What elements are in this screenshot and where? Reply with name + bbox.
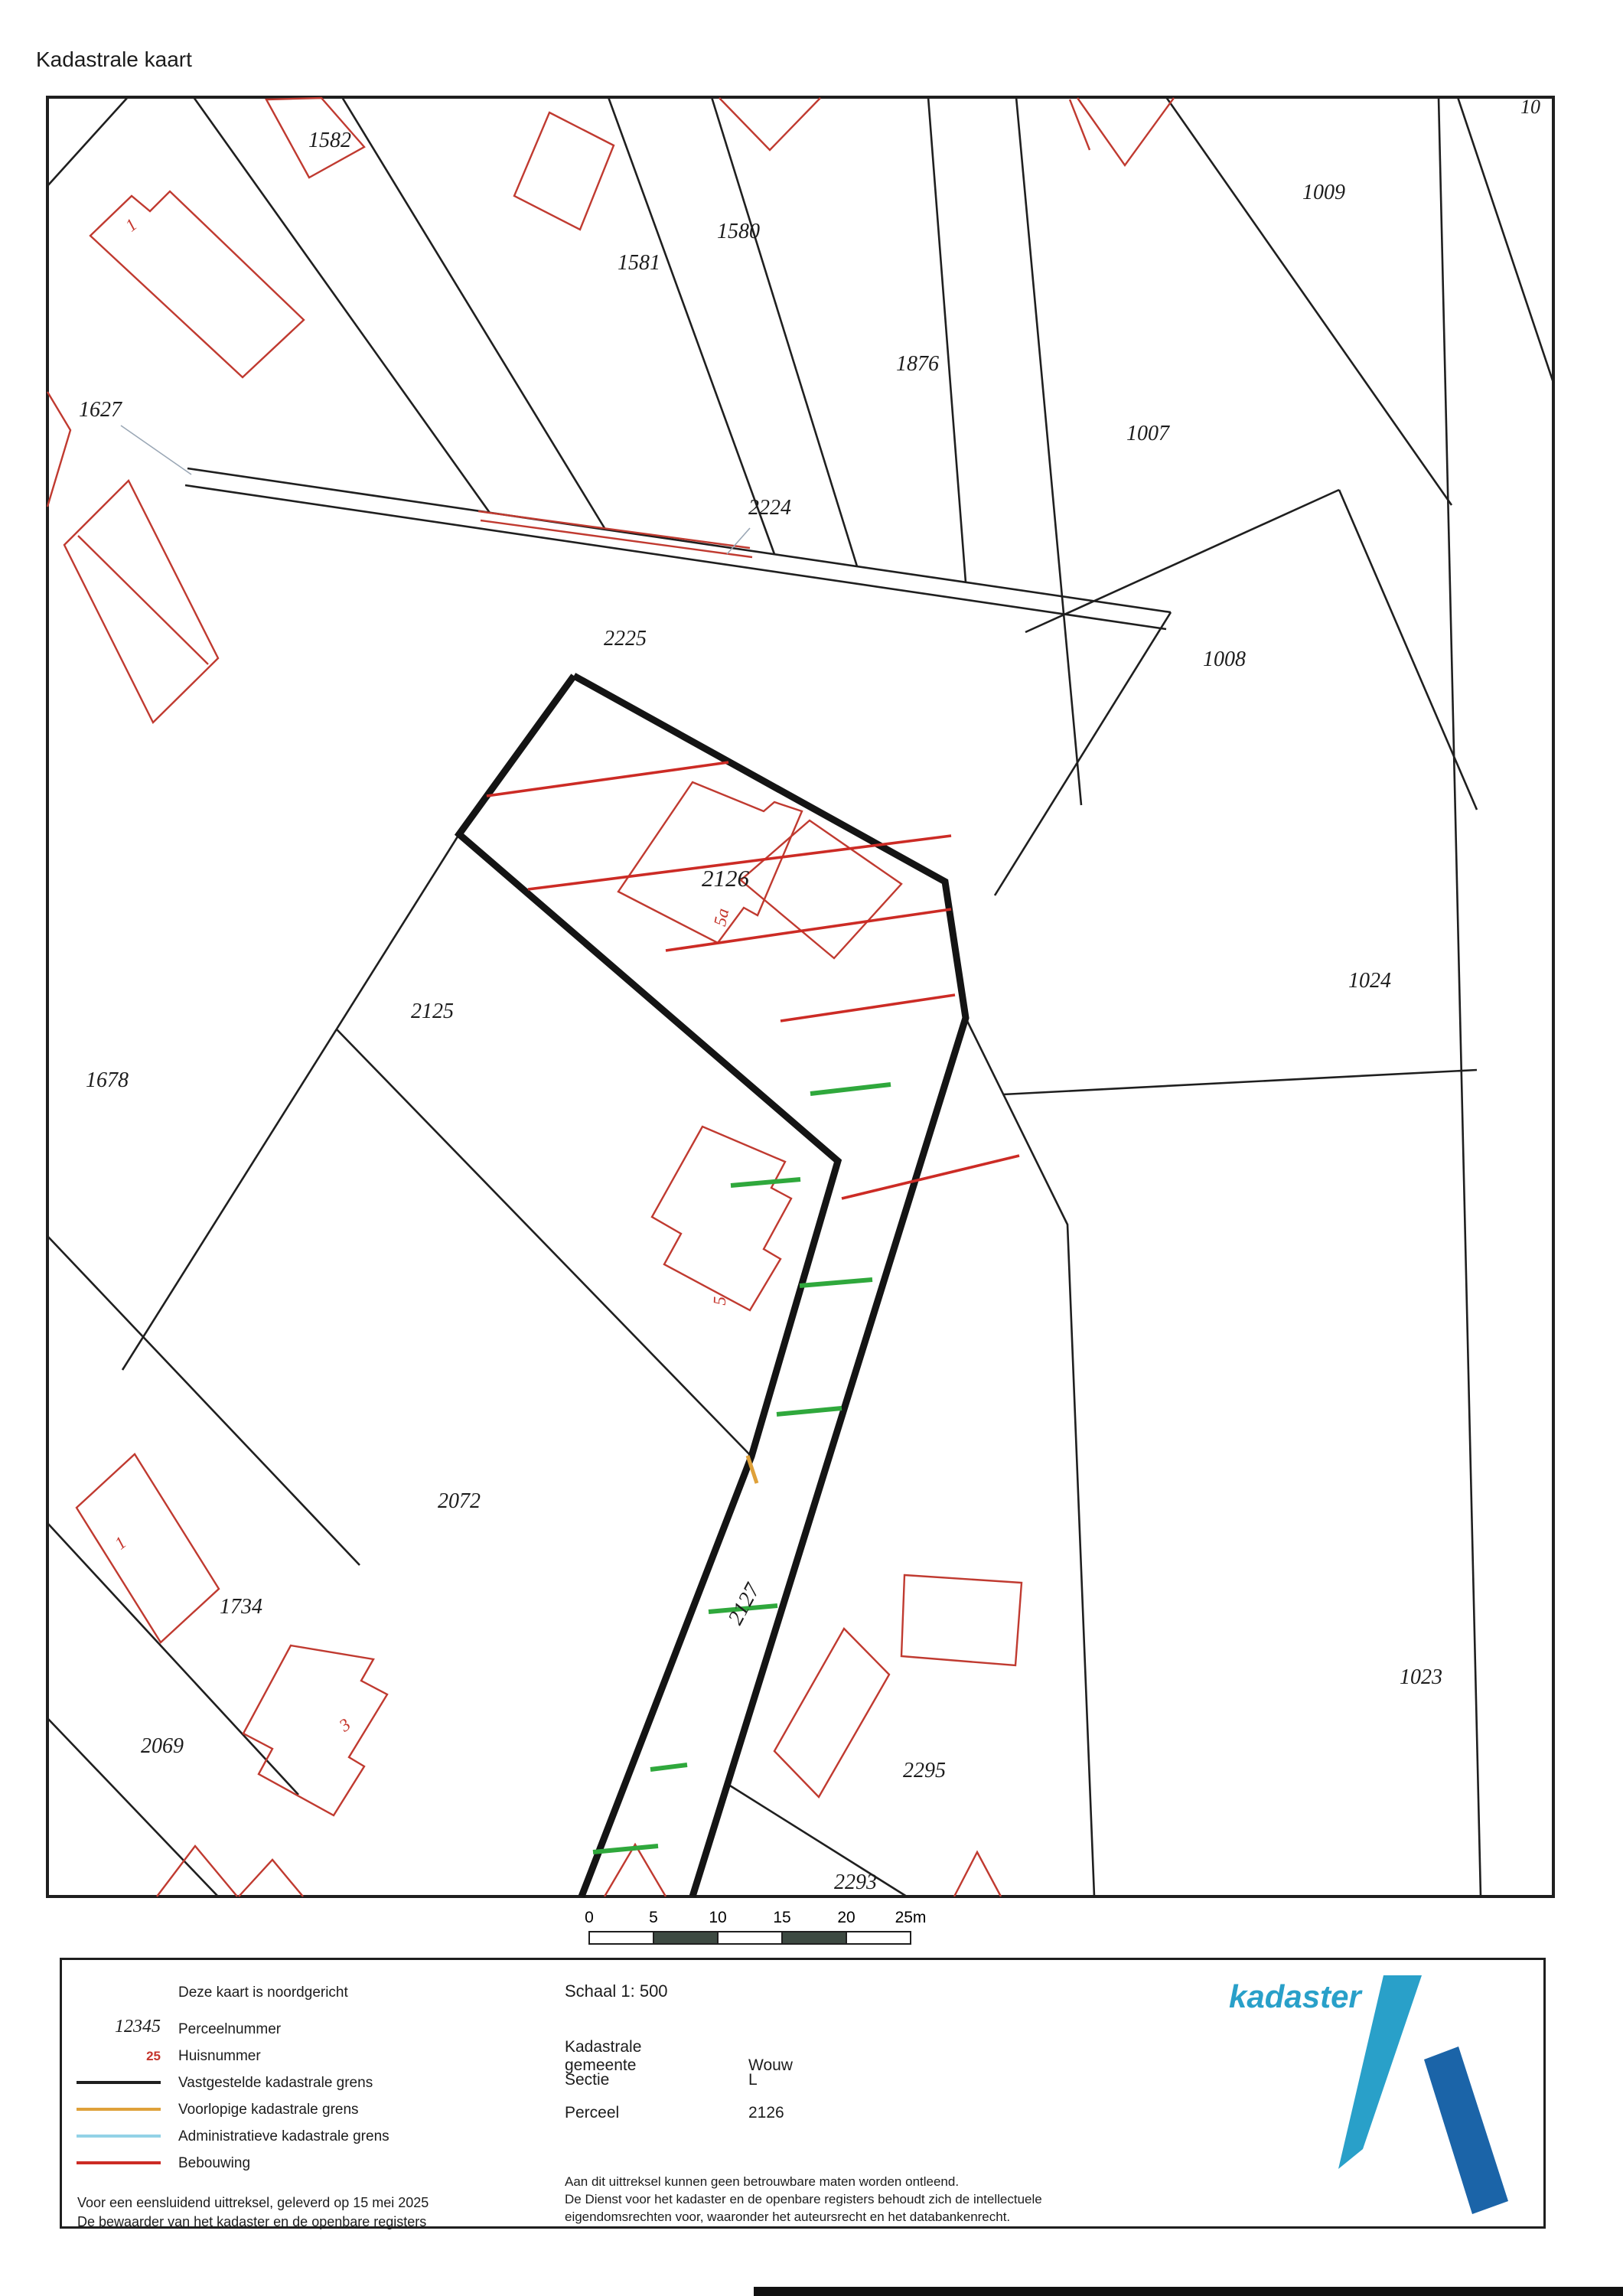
parcel-label-1876: 1876 <box>896 352 939 376</box>
parcel-boundary-20 <box>337 1029 751 1456</box>
legend-label-3: Bebouwing <box>178 2155 250 2172</box>
building-outline-7 <box>1070 99 1090 150</box>
scalebar-segment-1 <box>653 1932 718 1944</box>
perceelnummer-sample: 12345 <box>77 2017 161 2037</box>
scalebar-tick-20: 20 <box>837 1909 855 1926</box>
scalebar-segment-0 <box>589 1932 653 1944</box>
parcel-label-1580: 1580 <box>717 220 760 243</box>
map-border <box>47 97 1553 1896</box>
building-outline-19 <box>239 1860 303 1896</box>
green-boundary-mark-3 <box>777 1408 842 1414</box>
parcel-label-2069: 2069 <box>141 1734 184 1758</box>
schaal-text: Schaal 1: 500 <box>565 1981 668 2001</box>
kadaster-logo: kadaster <box>1217 1968 1600 2224</box>
bebouwing-line-0 <box>487 762 728 796</box>
parcel-label-2293: 2293 <box>834 1870 877 1894</box>
bebouwing-line-4 <box>842 1156 1019 1199</box>
parcel-boundary-5 <box>928 97 966 582</box>
building-outline-14 <box>77 1454 219 1642</box>
parcel-label-10: 10 <box>1520 96 1540 118</box>
scalebar-tick-10: 10 <box>709 1909 726 1926</box>
green-boundary-mark-0 <box>810 1084 891 1094</box>
parcel-label-2295: 2295 <box>903 1759 946 1782</box>
label-leader-0 <box>121 426 191 475</box>
north-note: Deze kaart is noordgericht <box>178 1985 348 2001</box>
parcel-label-1008: 1008 <box>1203 647 1246 671</box>
parcel-label-1582: 1582 <box>308 129 351 152</box>
info-value-1: L <box>702 2071 758 2089</box>
legend-sample-2 <box>77 2135 161 2138</box>
building-outline-8 <box>478 511 750 548</box>
scalebar-tick-25m: 25m <box>895 1909 927 1926</box>
info-value-2: 2126 <box>702 2104 784 2122</box>
parcel-boundary-10 <box>1025 490 1339 632</box>
legend-sample-3 <box>77 2161 161 2164</box>
parcel-boundary-3 <box>608 97 774 554</box>
scalebar-segment-2 <box>718 1932 782 1944</box>
info-label-0: Kadastrale gemeente <box>565 2038 702 2075</box>
logo-stroke-dark <box>1424 2047 1508 2214</box>
info-row-2: Perceel2126 <box>565 2104 793 2137</box>
legend-label-2: Administratieve kadastrale grens <box>178 2128 389 2145</box>
parcel-boundary-19 <box>47 1718 218 1896</box>
scalebar-tick-5: 5 <box>649 1909 658 1926</box>
parcel-boundary-15 <box>966 1018 1094 1896</box>
parcel-label-2072: 2072 <box>438 1489 481 1513</box>
parcel-boundary-9 <box>995 612 1171 895</box>
kadaster-logo-text: kadaster <box>1229 1978 1361 2015</box>
parcel-label-1023: 1023 <box>1400 1665 1442 1689</box>
parcel-boundary-17 <box>47 1236 360 1565</box>
info-row-1: SectieL <box>565 2071 793 2104</box>
legend-label-0: Vastgestelde kadastrale grens <box>178 2075 373 2092</box>
perceelnummer-label: Perceelnummer <box>178 2021 281 2038</box>
parcel-label-1009: 1009 <box>1302 181 1345 204</box>
building-outline-10 <box>618 782 802 943</box>
house-number-label-0: 1 <box>122 215 140 236</box>
disclaimer-line-2: eigendomsrechten voor, waaronder het aut… <box>565 2208 1042 2226</box>
building-outline-9 <box>481 520 752 557</box>
building-outline-15 <box>774 1629 889 1797</box>
disclaimer-line-0: Aan dit uittreksel kunnen geen betrouwba… <box>565 2173 1042 2190</box>
info-label-2: Perceel <box>565 2104 702 2122</box>
huisnummer-label: Huisnummer <box>178 2048 261 2065</box>
page: Kadastrale kaart 15821581158018761009100… <box>0 0 1623 2296</box>
disclaimer-line-1: De Dienst voor het kadaster en de openba… <box>565 2190 1042 2208</box>
parcel-label-2125: 2125 <box>411 1000 454 1023</box>
building-outline-17 <box>954 1852 1001 1896</box>
building-outline-18 <box>157 1846 237 1896</box>
parcel-boundary-0 <box>47 97 128 186</box>
parcel-boundary-13 <box>1339 490 1477 810</box>
parcel-label-1581: 1581 <box>618 251 660 275</box>
footer-line-1: Voor een eensluidend uittreksel, gelever… <box>77 2193 429 2213</box>
parcel-label-1007: 1007 <box>1126 422 1170 445</box>
parcel-boundary-21 <box>726 1783 907 1896</box>
scalebar-segment-3 <box>782 1932 846 1944</box>
parcel-boundary-8 <box>185 485 1166 629</box>
building-outline-13 <box>243 1645 387 1815</box>
scan-artifact-bar <box>754 2287 1623 2296</box>
bebouwing-line-3 <box>781 995 955 1021</box>
legend-footer: Voor een eensluidend uittreksel, gelever… <box>77 2193 429 2232</box>
green-boundary-mark-1 <box>731 1179 800 1186</box>
building-outline-5 <box>719 98 820 150</box>
parcel-label-2127: 2127 <box>724 1579 765 1629</box>
parcel-label-2224: 2224 <box>748 496 791 520</box>
building-outline-16 <box>901 1575 1022 1665</box>
building-outline-6 <box>1077 98 1174 165</box>
parcel-boundary-2 <box>342 97 605 528</box>
legend-panel: Deze kaart is noordgericht 12345 Perceel… <box>60 1958 1546 2229</box>
parcel-boundary-12 <box>1439 97 1481 1896</box>
green-boundary-mark-2 <box>800 1280 872 1286</box>
parcel-label-1734: 1734 <box>220 1595 262 1619</box>
building-outline-1 <box>64 481 218 722</box>
parcel-boundary-22 <box>1458 97 1553 383</box>
green-boundary-mark-5 <box>650 1765 687 1769</box>
house-number-label-1: 5a <box>710 907 732 928</box>
legend-label-1: Voorlopige kadastrale grens <box>178 2102 359 2118</box>
huisnummer-sample: 25 <box>77 2049 161 2064</box>
house-number-label-3: 1 <box>111 1533 129 1554</box>
scalebar-segment-4 <box>846 1932 911 1944</box>
cadastral-map: 1582158115801876100910071008162722242225… <box>0 0 1623 2296</box>
legend-sample-0 <box>77 2081 161 2084</box>
parcel-boundary-11 <box>1166 97 1452 505</box>
house-number-label-2: 5 <box>710 1296 729 1306</box>
info-label-1: Sectie <box>565 2071 702 2089</box>
parcel-label-1627: 1627 <box>79 398 122 422</box>
parcel-boundary-7 <box>187 468 1171 612</box>
disclaimer-text: Aan dit uittreksel kunnen geen betrouwba… <box>565 2173 1042 2226</box>
parcel-boundary-14 <box>1003 1070 1477 1094</box>
parcel-info-table: Kadastrale gemeenteWouwSectieLPerceel212… <box>565 2038 793 2137</box>
building-outline-4 <box>514 113 614 230</box>
scalebar-tick-15: 15 <box>773 1909 790 1926</box>
bebouwing-line-2 <box>666 909 951 951</box>
parcel-label-2225: 2225 <box>604 627 647 651</box>
parcel-label-2126: 2126 <box>702 865 750 892</box>
parcel-label-1678: 1678 <box>86 1068 129 1092</box>
scalebar-tick-0: 0 <box>585 1909 594 1926</box>
parcel-label-1024: 1024 <box>1348 969 1391 993</box>
legend-sample-1 <box>77 2108 161 2111</box>
parcel-boundary-6 <box>1016 97 1081 805</box>
building-outline-12 <box>652 1127 791 1310</box>
building-outline-21 <box>47 392 70 507</box>
info-row-0: Kadastrale gemeenteWouw <box>565 2038 793 2071</box>
footer-line-2: De bewaarder van het kadaster en de open… <box>77 2213 429 2232</box>
house-number-label-4: 3 <box>335 1714 354 1736</box>
